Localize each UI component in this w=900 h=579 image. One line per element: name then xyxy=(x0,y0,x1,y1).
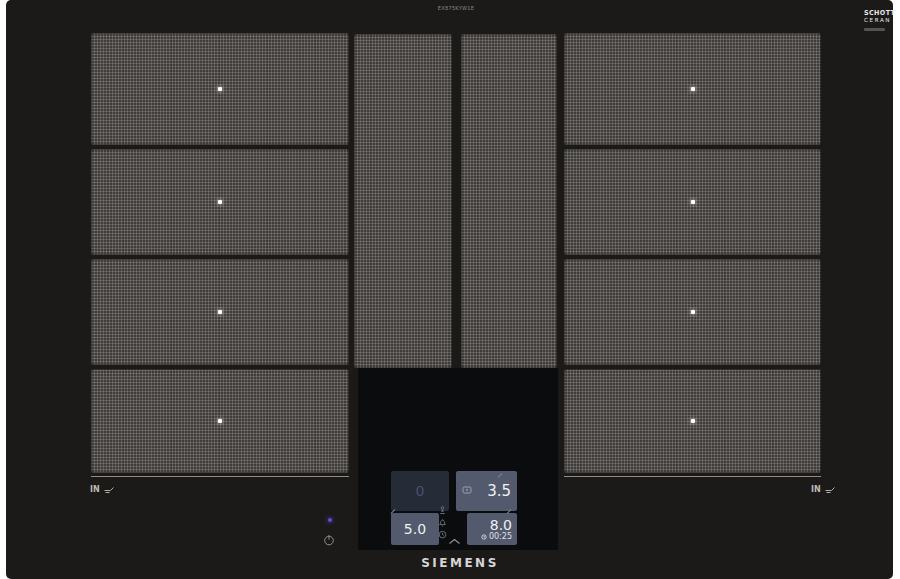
induction-marking-label: IN xyxy=(90,485,100,494)
zone-center-marker xyxy=(691,310,695,314)
timer-clock-icon[interactable] xyxy=(438,530,447,539)
zone-center-marker xyxy=(691,419,695,423)
induction-marking-right: IN xyxy=(811,485,836,494)
cooking-sensor-icon[interactable] xyxy=(438,506,447,515)
front-left-zone-display[interactable]: 5.0 xyxy=(391,513,439,545)
function-icon-column xyxy=(437,506,447,539)
rear-left-zone-display[interactable]: 0 xyxy=(391,471,449,511)
siemens-logo: SIEMENS xyxy=(6,556,900,570)
zone-center-marker xyxy=(218,87,222,91)
pan-detected-icon xyxy=(462,486,472,494)
glass-edge-line-right xyxy=(564,476,821,477)
cooking-zone-left-2 xyxy=(91,149,349,255)
cooking-zone-right-4 xyxy=(564,369,821,473)
schott-logo-text: SCHOTT xyxy=(864,9,893,16)
zone-center-marker xyxy=(218,310,222,314)
front-right-zone-display[interactable]: 8.0 00:25 xyxy=(467,513,517,545)
model-label: EX875KYW1E xyxy=(177,6,735,12)
induction-marking-label: IN xyxy=(811,485,821,494)
alarm-bell-icon[interactable] xyxy=(438,518,447,527)
ceran-logo-text: CERAN xyxy=(864,17,893,23)
front-left-power-level: 5.0 xyxy=(404,521,426,537)
induction-pan-icon xyxy=(103,485,115,494)
cooking-zone-center-left xyxy=(354,34,452,368)
cooking-zone-left-1 xyxy=(91,33,349,145)
mini-clock-icon xyxy=(481,534,487,540)
schott-ceran-badge: SCHOTT CERAN xyxy=(864,9,900,31)
cooking-zone-right-1 xyxy=(564,33,821,145)
cooking-zone-left-4 xyxy=(91,369,349,473)
glass-edge-line-left xyxy=(91,476,349,477)
badge-subtext-bar xyxy=(864,28,885,31)
zone-center-marker xyxy=(691,87,695,91)
cooking-zone-right-2 xyxy=(564,149,821,255)
zone-center-marker xyxy=(691,200,695,204)
control-panel-region xyxy=(358,368,558,550)
chevron-up-icon[interactable] xyxy=(448,538,461,545)
zone-center-marker xyxy=(218,200,222,204)
zone-timer: 00:25 xyxy=(481,532,512,541)
front-right-power-level: 8.0 xyxy=(490,517,512,533)
cooking-zone-center-right xyxy=(461,34,557,368)
induction-marking-left: IN xyxy=(90,485,115,494)
rear-right-power-level: 3.5 xyxy=(487,482,511,500)
rear-left-power-level: 0 xyxy=(416,483,425,499)
cooking-zone-right-3 xyxy=(564,259,821,365)
cooking-zone-left-3 xyxy=(91,259,349,365)
status-led xyxy=(328,518,332,522)
zone-timer-value: 00:25 xyxy=(489,532,512,541)
induction-pan-icon xyxy=(824,485,836,494)
power-icon[interactable] xyxy=(323,534,335,546)
induction-hob-surface: EX875KYW1E SCHOTT CERAN IN IN xyxy=(6,0,893,579)
zone-center-marker xyxy=(218,419,222,423)
screenshot-stage: EX875KYW1E SCHOTT CERAN IN IN xyxy=(0,0,900,579)
